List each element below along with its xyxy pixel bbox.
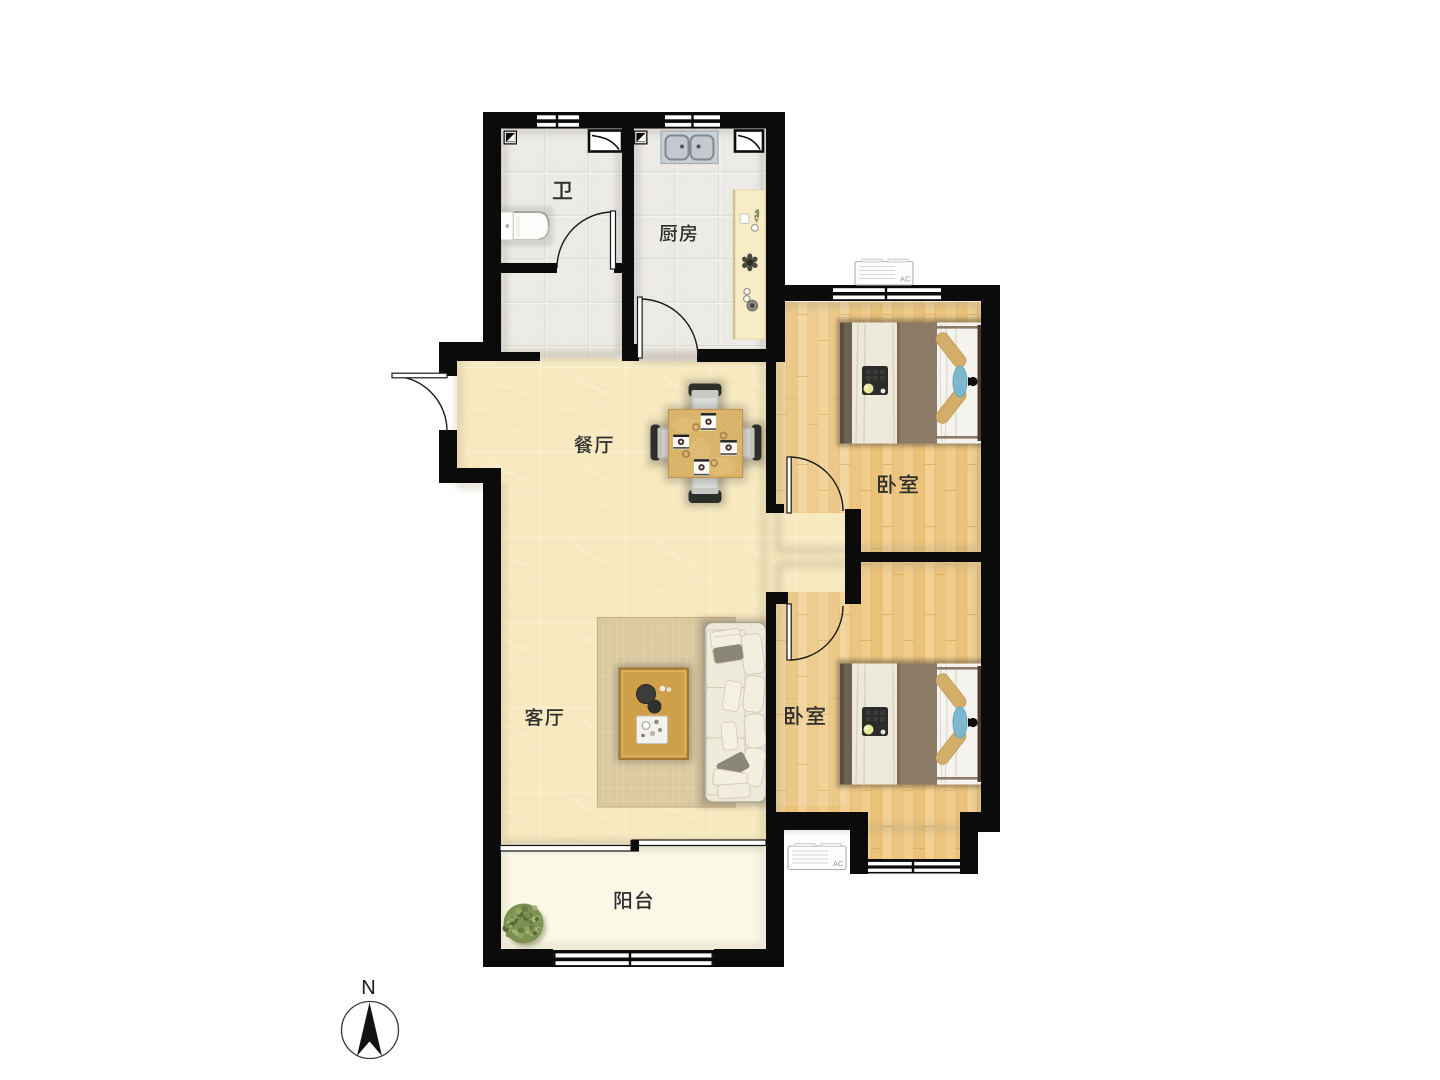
svg-text:AC: AC [900, 275, 911, 284]
svg-text:N: N [361, 977, 375, 999]
svg-text:AC: AC [833, 859, 844, 868]
